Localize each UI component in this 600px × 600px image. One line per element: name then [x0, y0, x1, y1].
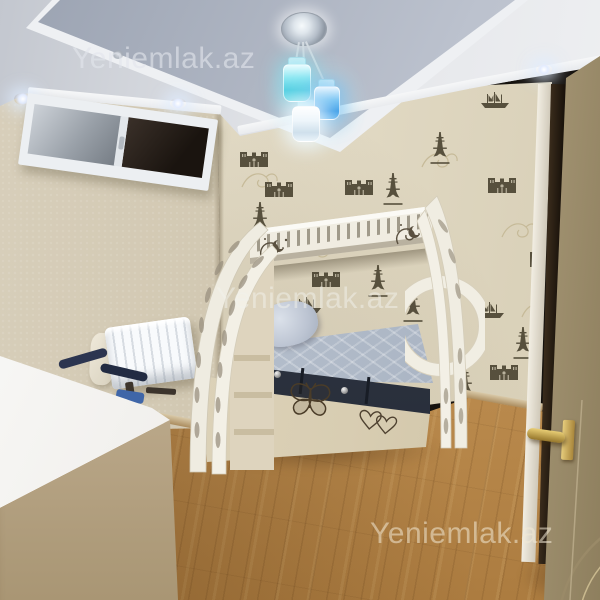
pendant-lamp-white	[292, 106, 320, 142]
room-photo: Yeniemlak.az Yeniemlak.az Yeniemlak.az	[0, 0, 600, 600]
drawer-knob	[341, 387, 348, 394]
eiffel-tower-print	[384, 173, 403, 205]
chandelier-ceiling-mount	[281, 12, 327, 46]
recessed-spotlight	[170, 98, 186, 109]
building-print	[488, 178, 516, 193]
building-print	[240, 152, 268, 167]
bed-side-panel-left	[182, 200, 277, 475]
building-print	[345, 180, 373, 195]
eiffel-tower-print	[431, 132, 450, 164]
butterfly-decor	[285, 379, 335, 421]
window-glass-right	[122, 117, 209, 178]
watermark: Yeniemlak.az	[72, 42, 255, 76]
bed-side-panel-right	[405, 186, 485, 460]
pendant-lamp-cyan	[283, 64, 311, 102]
building-print	[490, 365, 518, 380]
watermark: Yeniemlak.az	[216, 282, 399, 316]
heart-decor	[356, 404, 403, 440]
window-glass-left	[28, 104, 122, 166]
building-print	[265, 182, 293, 197]
recessed-spotlight	[536, 64, 552, 75]
ship-print	[481, 92, 509, 108]
damask-flourish	[422, 154, 457, 167]
watermark: Yeniemlak.az	[370, 517, 553, 551]
